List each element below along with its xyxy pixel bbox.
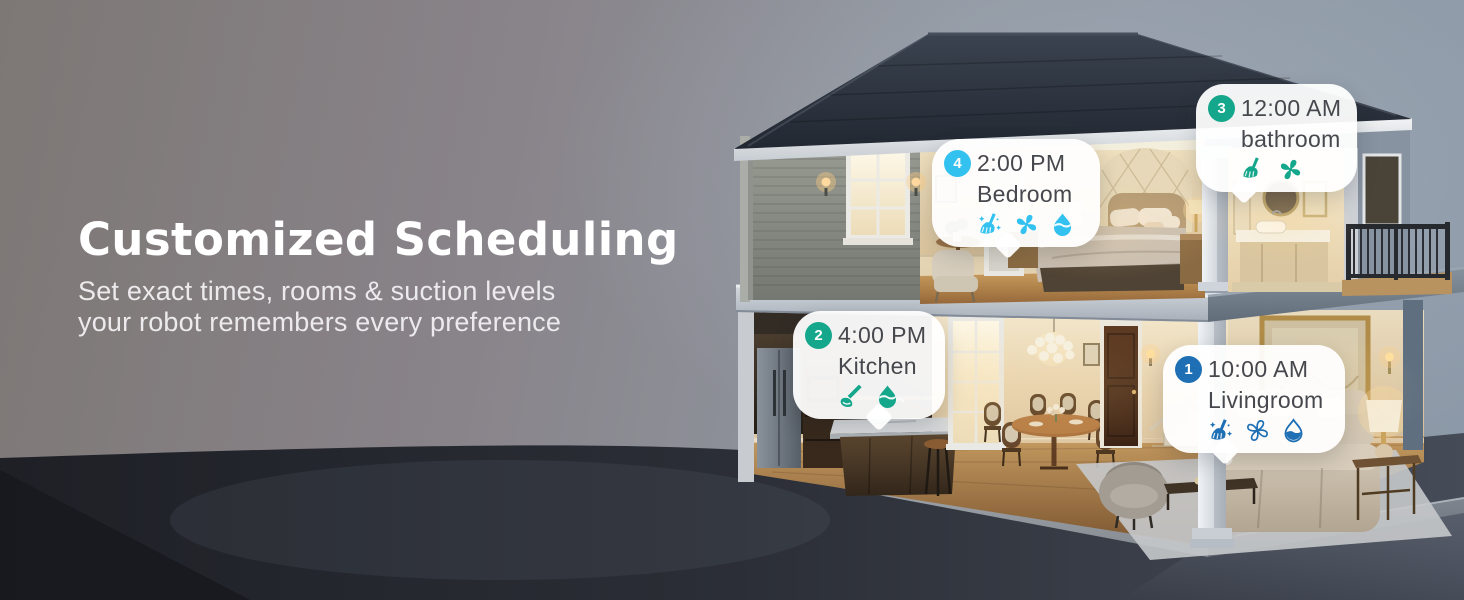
page-subtitle: Set exact times, rooms & suction levelsy…	[78, 276, 718, 338]
drop-outline-icon	[1280, 417, 1307, 444]
schedule-bubble-bedroom: 4 2:00 PM Bedroom	[932, 139, 1100, 247]
schedule-room: Livingroom	[1208, 386, 1335, 414]
schedule-step-badge: 2	[805, 322, 832, 349]
fan-outline-icon	[1244, 417, 1271, 444]
schedule-room: Kitchen	[838, 352, 935, 380]
hero-copy: Customized Scheduling Set exact times, r…	[78, 214, 718, 338]
schedule-step-badge: 3	[1208, 95, 1235, 122]
schedule-mode-icons	[1241, 156, 1347, 184]
balcony	[1342, 120, 1452, 296]
schedule-bubble-livingroom: 1 10:00 AM Livingroom	[1163, 345, 1345, 453]
bedroom-window-exterior	[843, 144, 913, 245]
schedule-mode-icons	[977, 211, 1090, 239]
drop-icon	[1049, 211, 1076, 238]
downspout	[748, 156, 753, 300]
schedule-time: 12:00 AM	[1241, 95, 1341, 122]
page-title: Customized Scheduling	[78, 214, 718, 266]
mop-icon	[838, 383, 865, 410]
schedule-time: 2:00 PM	[977, 150, 1065, 177]
schedule-step-badge: 1	[1175, 356, 1202, 383]
schedule-time: 4:00 PM	[838, 322, 926, 349]
exterior-siding-wall	[740, 136, 926, 302]
schedule-mode-icons	[838, 383, 935, 411]
schedule-room: bathroom	[1241, 125, 1347, 153]
schedule-time: 10:00 AM	[1208, 356, 1308, 383]
schedule-bubble-kitchen: 2 4:00 PM Kitchen	[793, 311, 945, 419]
broom-sparkle-icon	[977, 211, 1004, 238]
schedule-bubble-bathroom: 3 12:00 AM bathroom	[1196, 84, 1357, 192]
schedule-room: Bedroom	[977, 180, 1090, 208]
left-cut-face	[738, 296, 754, 482]
fan-icon	[1277, 156, 1304, 183]
schedule-step-badge: 4	[944, 150, 971, 177]
fan-icon	[1013, 211, 1040, 238]
